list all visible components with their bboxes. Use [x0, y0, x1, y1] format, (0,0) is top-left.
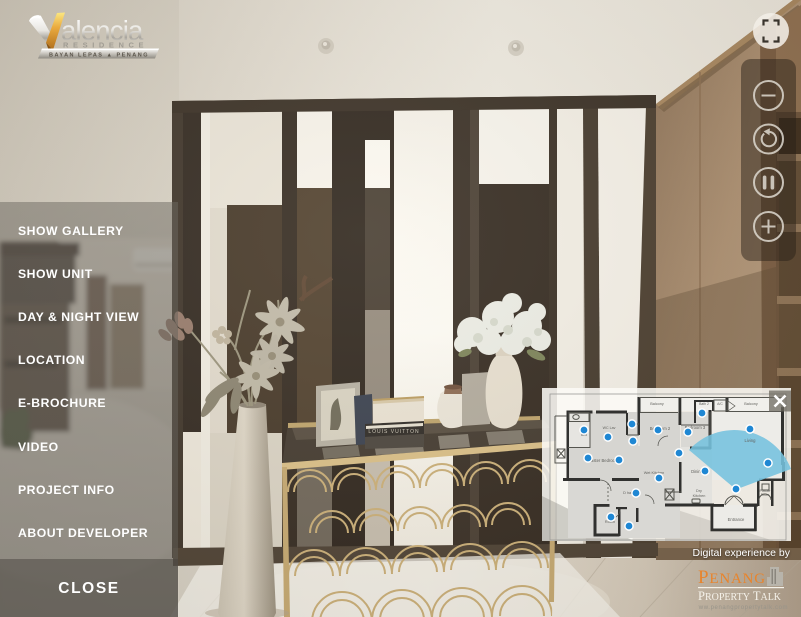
- svg-text:www.penangpropertytalk.com: www.penangpropertytalk.com: [698, 605, 788, 611]
- svg-text:Bath 2: Bath 2: [699, 402, 709, 406]
- svg-text:PENANG: PENANG: [698, 567, 766, 588]
- svg-text:Room: Room: [761, 493, 770, 497]
- svg-text:Balcony: Balcony: [650, 402, 664, 406]
- svg-text:Entrance: Entrance: [728, 517, 745, 522]
- svg-text:WC Lav: WC Lav: [603, 426, 616, 430]
- svg-text:BAYAN LEPAS ▲ PENANG: BAYAN LEPAS ▲ PENANG: [49, 53, 149, 59]
- svg-text:RESIDENCE: RESIDENCE: [63, 41, 148, 50]
- svg-text:A/C: A/C: [717, 402, 723, 406]
- svg-text:Living: Living: [745, 438, 757, 443]
- svg-text:Dry: Dry: [696, 489, 702, 493]
- svg-text:PROPERTY TALK: PROPERTY TALK: [698, 589, 782, 603]
- svg-text:LOUIS VUITTON: LOUIS VUITTON: [368, 429, 419, 435]
- svg-text:Balcony: Balcony: [744, 402, 758, 406]
- svg-text:Kitchen: Kitchen: [693, 494, 706, 498]
